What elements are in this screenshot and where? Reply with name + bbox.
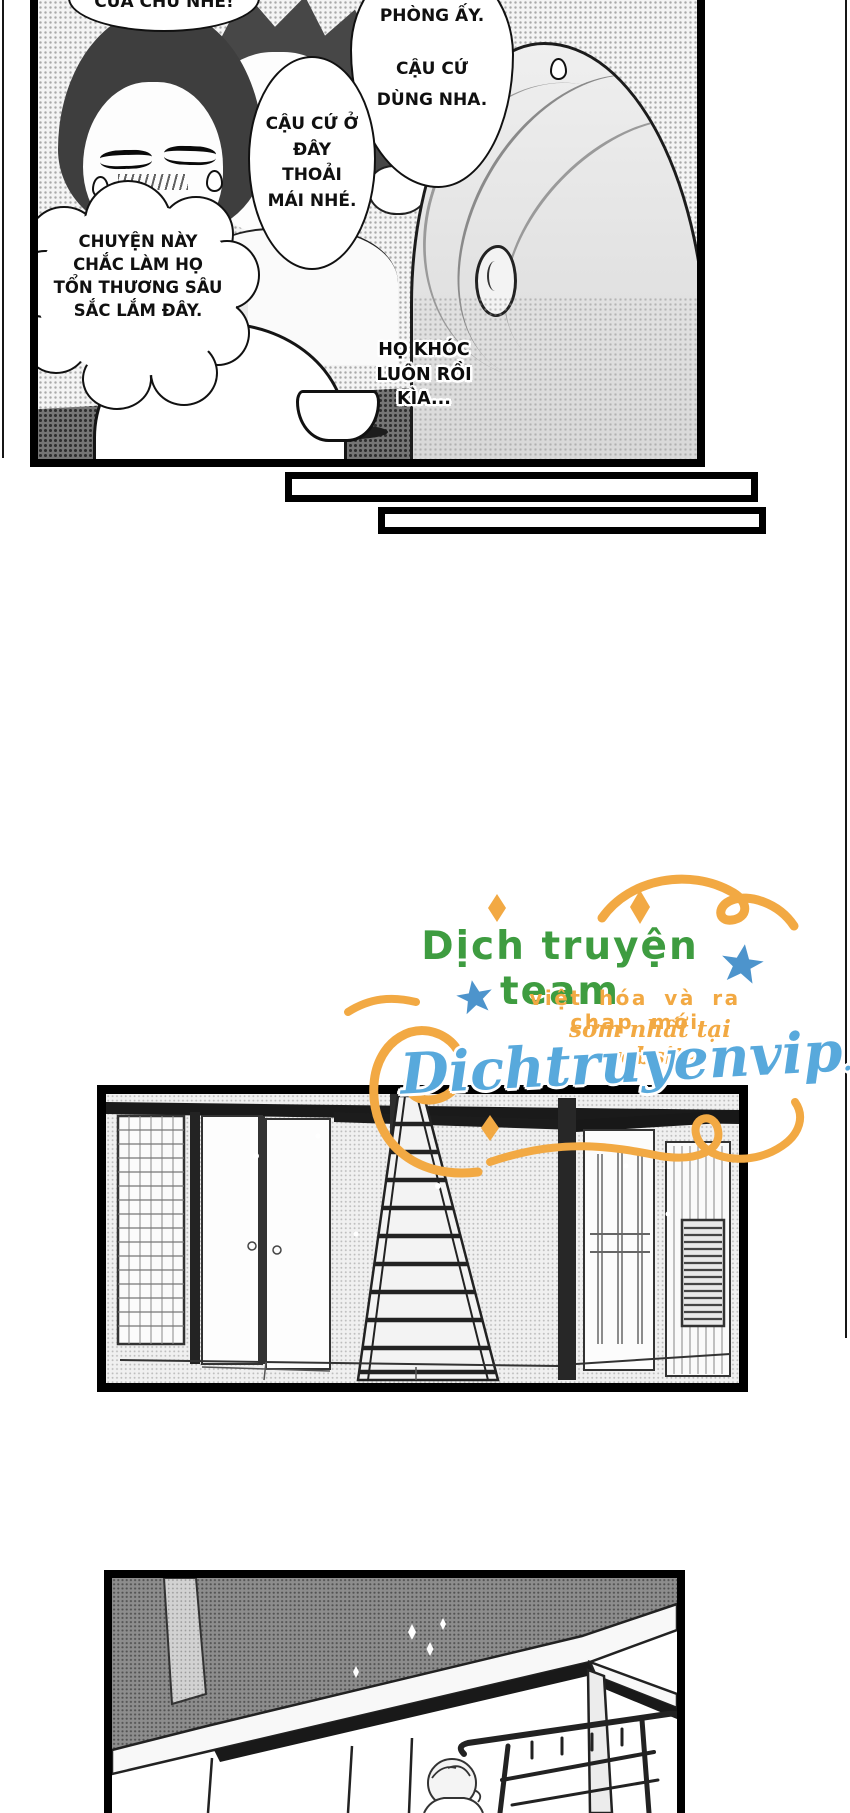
speech-text: CỦA CHÚ NHÉ!: [70, 0, 258, 12]
wooden-rack-art: [461, 1714, 677, 1813]
translator-watermark: Dịch truyện team việt hóa và ra chap mới…: [330, 850, 830, 1180]
man-eye-right: [164, 145, 217, 166]
panel-top-crying-scene: CỦA CHÚ NHÉ! PHÒNG ẤY. CẬU CỨ DÙNG NHA. …: [30, 0, 705, 467]
speech-bubble-middle: CẬU CỨ Ở ĐÂY THOẢI MÁI NHÉ.: [248, 56, 376, 270]
speech-text: CẬU CỨ DÙNG NHA.: [372, 54, 492, 117]
room-corner-art: [112, 1578, 677, 1813]
panel-bottom-room: [104, 1570, 685, 1813]
speech-text: PHÒNG ẤY.: [352, 6, 512, 26]
shoji-screen-art: [118, 1116, 184, 1344]
thought-text: CHUYỆN NÀY CHẮC LÀM HỌ TỔN THƯƠNG SÂU SẮ…: [52, 230, 224, 322]
thought-cloud-bubble: CHUYỆN NÀY CHẮC LÀM HỌ TỔN THƯƠNG SÂU SẮ…: [30, 178, 258, 406]
page-edge-right: [845, 0, 847, 1338]
speech-text: CẬU CỨ Ở ĐÂY THOẢI MÁI NHÉ.: [264, 112, 360, 214]
fusuma-doors-left-art: [190, 1112, 330, 1369]
ear-inner-line: [487, 261, 503, 291]
page-edge-left: [2, 0, 4, 458]
site-tld-text: .com: [842, 1043, 850, 1078]
figure-person-art: [424, 1759, 483, 1813]
table-edge-bar-1: [285, 472, 758, 502]
listener-sweat-drop: [550, 58, 567, 80]
floating-narration: HỌ KHÓC LUÔN RỒI KÌA...: [368, 338, 480, 412]
table-edge-bar-2: [378, 507, 766, 534]
manga-page: CỦA CHÚ NHÉ! PHÒNG ẤY. CẬU CỨ DÙNG NHA. …: [0, 0, 850, 1813]
